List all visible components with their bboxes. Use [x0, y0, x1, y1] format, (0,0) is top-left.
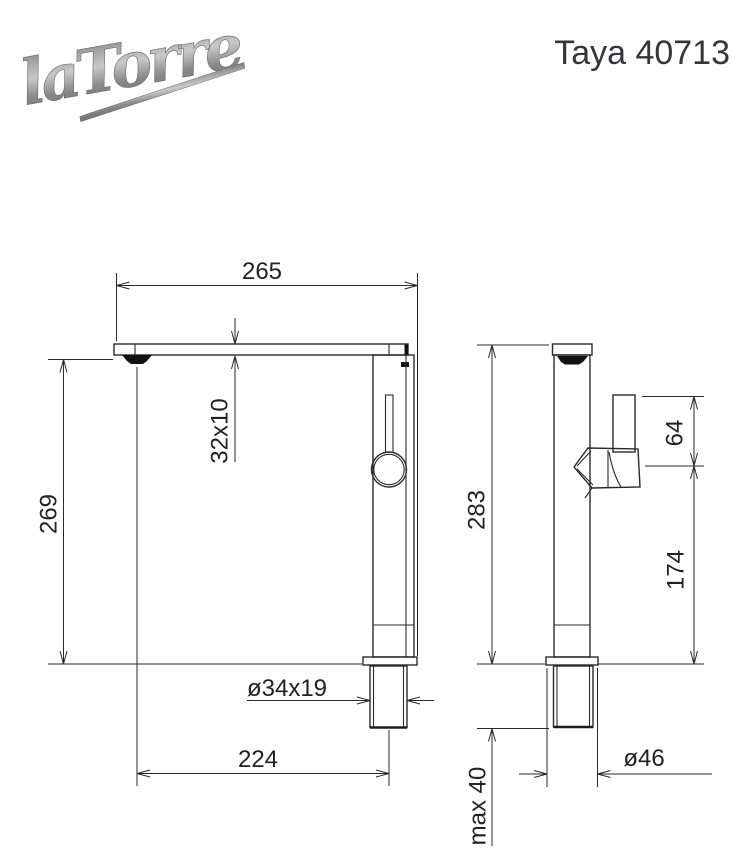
side-view: [546, 344, 640, 727]
base-flange-front: [363, 657, 417, 665]
handle-knob-tail: [585, 488, 592, 498]
body-top-mark: [401, 362, 409, 367]
front-view: [114, 344, 417, 728]
handle-knob-outer-front: [372, 452, 407, 487]
datasheet-page: laTorre Taya 40713: [0, 0, 735, 854]
dim-text-46: ø46: [623, 745, 664, 772]
technical-drawing: 265 32x10 269 ø34x19: [0, 0, 735, 854]
spout-end-mark: [405, 345, 409, 356]
handle-knob-inner-front: [374, 454, 404, 484]
dim-text-32x10: 32x10: [207, 398, 234, 463]
base-flange-side: [546, 657, 598, 665]
dim-text-174: 174: [663, 550, 690, 590]
handle-rod-front: [386, 395, 394, 452]
dim-text-64: 64: [662, 420, 689, 447]
aerator-front: [122, 355, 152, 364]
aerator-side: [557, 356, 588, 365]
shank-front: [370, 666, 407, 728]
dim-text-265: 265: [242, 258, 282, 285]
dim-text-269: 269: [36, 494, 63, 534]
body-column-side: [554, 355, 590, 657]
spout-cap-side: [553, 344, 593, 355]
side-view-dimensions: 283 64 174 ø46 max: [464, 345, 713, 846]
front-view-dimensions: 265 32x10 269 ø34x19: [36, 258, 435, 786]
handle-knob-curve: [609, 452, 621, 487]
dim-text-max40: max 40: [465, 767, 492, 846]
shank-side: [554, 666, 594, 727]
dim-text-283: 283: [464, 490, 491, 530]
handle-rod-side: [613, 395, 635, 452]
handle-knob-side: [574, 448, 640, 488]
dim-text-34x19: ø34x19: [247, 675, 327, 702]
spout-bar: [114, 344, 408, 355]
dim-text-224: 224: [238, 746, 278, 773]
